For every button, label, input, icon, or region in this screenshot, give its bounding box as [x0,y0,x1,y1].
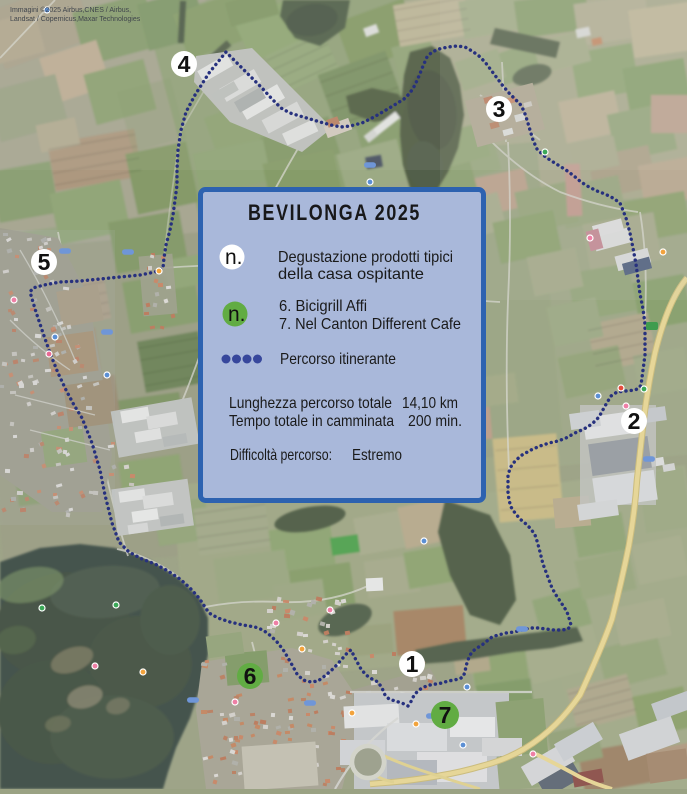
svg-text:5: 5 [38,249,51,275]
svg-text:14,10 km: 14,10 km [402,395,458,412]
svg-text:6. Bicigrill Affi: 6. Bicigrill Affi [279,298,367,315]
svg-text:Landsat / Copernicus,Maxar Tec: Landsat / Copernicus,Maxar Technologies [10,16,141,23]
svg-text:Degustazione prodotti tipici: Degustazione prodotti tipici [278,249,453,266]
svg-text:Immagini ©2025 Airbus,CNES / A: Immagini ©2025 Airbus,CNES / Airbus, [10,6,131,14]
svg-text:1: 1 [406,651,419,677]
svg-text:3: 3 [493,96,506,122]
svg-text:Tempo totale in camminata: Tempo totale in camminata [229,413,394,430]
svg-text:della casa ospitante: della casa ospitante [278,266,424,283]
svg-text:7: 7 [439,702,452,728]
svg-text:n.: n. [228,303,246,326]
svg-text:Lunghezza percorso totale: Lunghezza percorso totale [229,395,392,412]
svg-text:Difficoltà percorso:: Difficoltà percorso: [230,447,332,464]
svg-text:Percorso itinerante: Percorso itinerante [280,351,396,368]
svg-text:4: 4 [178,51,191,77]
svg-text:2: 2 [628,408,641,434]
svg-text:Estremo: Estremo [352,447,402,464]
svg-text:BEVILONGA 2025: BEVILONGA 2025 [248,200,421,225]
svg-text:n.: n. [225,246,243,269]
svg-text:200 min.: 200 min. [408,413,462,430]
svg-text:7. Nel Canton Different Cafe: 7. Nel Canton Different Cafe [279,316,461,333]
svg-text:6: 6 [244,663,257,689]
